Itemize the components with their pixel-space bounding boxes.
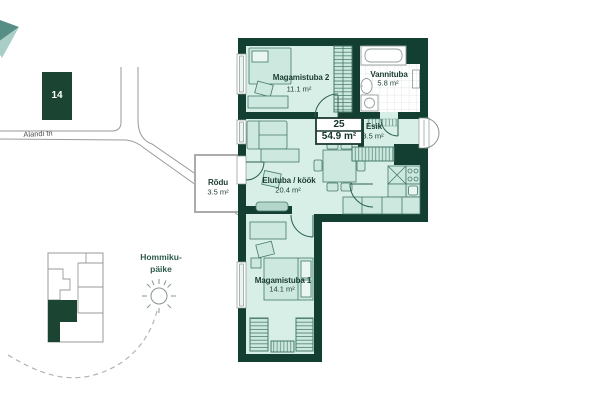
balcony-name: Rõdu <box>208 179 228 187</box>
bedroom2-name: Magamistuba 2 <box>273 74 330 82</box>
living-kitchen-area: 20.4 m² <box>275 186 300 194</box>
balcony-area: 3.5 m² <box>207 188 228 196</box>
floorplan-page: 14 Alandi tn Hommiku- päike Magamistuba … <box>0 0 600 400</box>
coat-rack <box>352 147 394 161</box>
sun-icon <box>142 279 176 313</box>
bedroom1-area: 14.1 m² <box>269 285 294 293</box>
apartment-total-area: 54.9 m² <box>322 132 356 142</box>
orientation-note-line1: Hommiku- <box>140 253 182 262</box>
apartment-number: 25 <box>333 120 344 130</box>
tv-bench <box>256 202 288 211</box>
street-label: Alandi tn <box>23 129 53 138</box>
stove <box>406 166 420 184</box>
apartment-plan <box>195 38 439 362</box>
dining-table <box>323 150 356 182</box>
hall-name: Esik <box>366 123 382 131</box>
hall-area: 3.5 m² <box>362 132 383 140</box>
map-building-number: 14 <box>51 91 62 101</box>
key-plan <box>48 253 103 342</box>
wardrobe-bedroom2 <box>334 46 352 112</box>
living-kitchen-name: Elutuba / köök <box>262 177 315 185</box>
washing-machine <box>361 95 378 111</box>
bathroom-area: 5.8 m² <box>377 79 398 87</box>
logo-icon <box>0 14 19 58</box>
orientation-note-line2: päike <box>150 265 172 274</box>
floorplan-drawing <box>0 0 600 400</box>
bedroom2-area: 11.1 m² <box>287 85 312 93</box>
